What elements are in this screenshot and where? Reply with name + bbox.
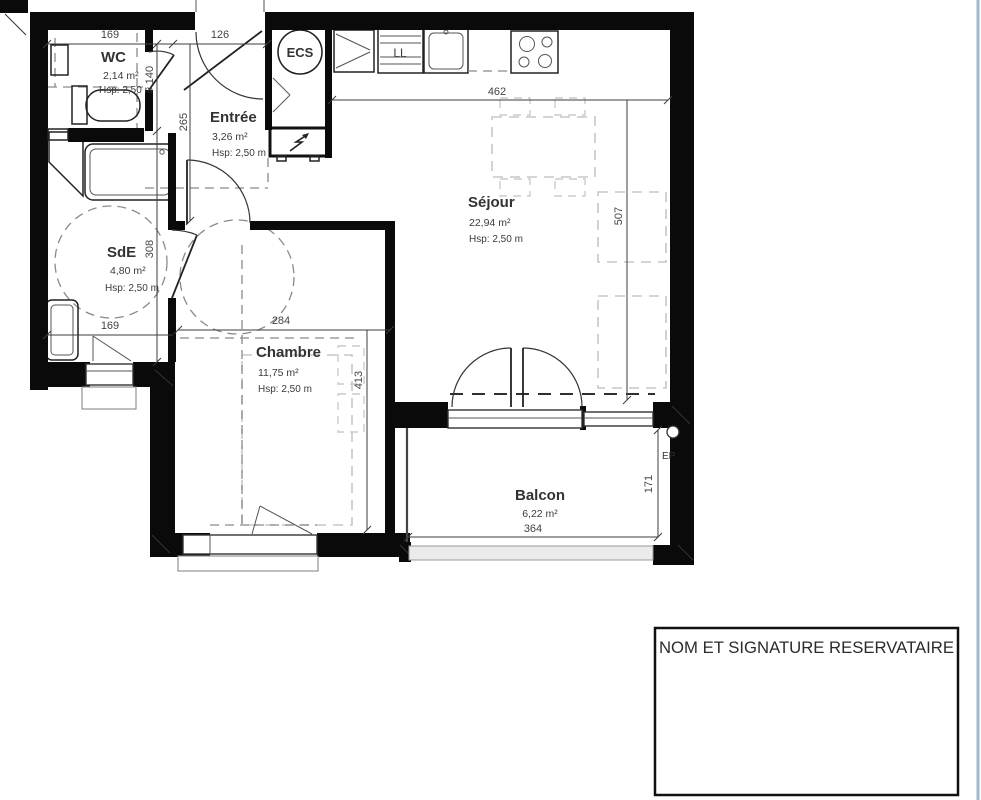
- dim-sde-width: 169: [101, 320, 119, 332]
- dim-balcon-depth: 171: [643, 475, 655, 493]
- rain-drain-label: EP: [662, 451, 676, 462]
- signature-box: NOM ET SIGNATURE RESERVATAIRE: [655, 628, 958, 795]
- dim-sejour-width: 462: [488, 86, 506, 98]
- sde-name: SdE: [107, 244, 136, 261]
- sde-hsp: Hsp: 2,50 m: [105, 283, 159, 294]
- ecs-label: ECS: [287, 45, 314, 60]
- sejour-area: 22,94 m²: [469, 217, 511, 229]
- sejour-window: [584, 412, 653, 426]
- dim-sejour-depth: 507: [613, 207, 625, 225]
- balcon-area: 6,22 m²: [522, 508, 558, 520]
- entree-area: 3,26 m²: [212, 131, 248, 143]
- chambre-area: 11,75 m²: [258, 367, 299, 379]
- sejour-name: Séjour: [468, 194, 515, 211]
- chambre-door: [187, 160, 250, 224]
- cooktop: [511, 31, 558, 73]
- kitchen-cupboard: [334, 30, 374, 72]
- wc-hsp: Hsp: 2,50 m: [99, 85, 153, 96]
- dim-wc-width: 169: [101, 29, 119, 41]
- balcony-french-door: [448, 348, 582, 428]
- chambre-window: [178, 506, 318, 571]
- towel-radiator: [46, 300, 78, 360]
- dim-chambre-width: 284: [272, 315, 290, 327]
- electrical-panel: [270, 128, 328, 161]
- entree-name: Entrée: [210, 109, 257, 126]
- sde-area: 4,80 m²: [110, 265, 146, 277]
- sejour-hsp: Hsp: 2,50 m: [469, 234, 523, 245]
- washing-machine: LL: [378, 28, 423, 73]
- entrance-door: [184, 0, 264, 99]
- sejour-wall-cabinets-furniture: [598, 192, 666, 388]
- sde-window: [82, 336, 136, 409]
- dim-entry-door: 126: [211, 29, 229, 41]
- bathtub: [85, 144, 175, 200]
- entree-hsp: Hsp: 2,50 m: [212, 148, 266, 159]
- dim-balcon-width: 364: [524, 523, 542, 535]
- dim-wc-depth: 140: [144, 66, 156, 84]
- dim-sde-depth: 308: [144, 240, 156, 258]
- wc-radiator: [51, 45, 68, 75]
- floor-plan-drawing: LL: [0, 0, 981, 800]
- chambre-name: Chambre: [256, 344, 321, 361]
- ecs-water-heater: [273, 30, 322, 112]
- kitchen-sink: [424, 29, 468, 73]
- wc-area: 2,14 m²: [103, 70, 139, 82]
- floor-plan-page: LL: [0, 0, 981, 800]
- balcon-name: Balcon: [515, 487, 565, 504]
- wc-name: WC: [101, 49, 126, 66]
- dim-entree-depth: 265: [178, 113, 190, 131]
- signature-box-title: NOM ET SIGNATURE RESERVATAIRE: [659, 639, 954, 657]
- rain-drain-circle: [667, 426, 679, 438]
- dining-table-furniture: [492, 98, 595, 196]
- chambre-hsp: Hsp: 2,50 m: [258, 384, 312, 395]
- washing-machine-label: LL: [393, 46, 407, 60]
- dim-chambre-depth: 413: [353, 371, 365, 389]
